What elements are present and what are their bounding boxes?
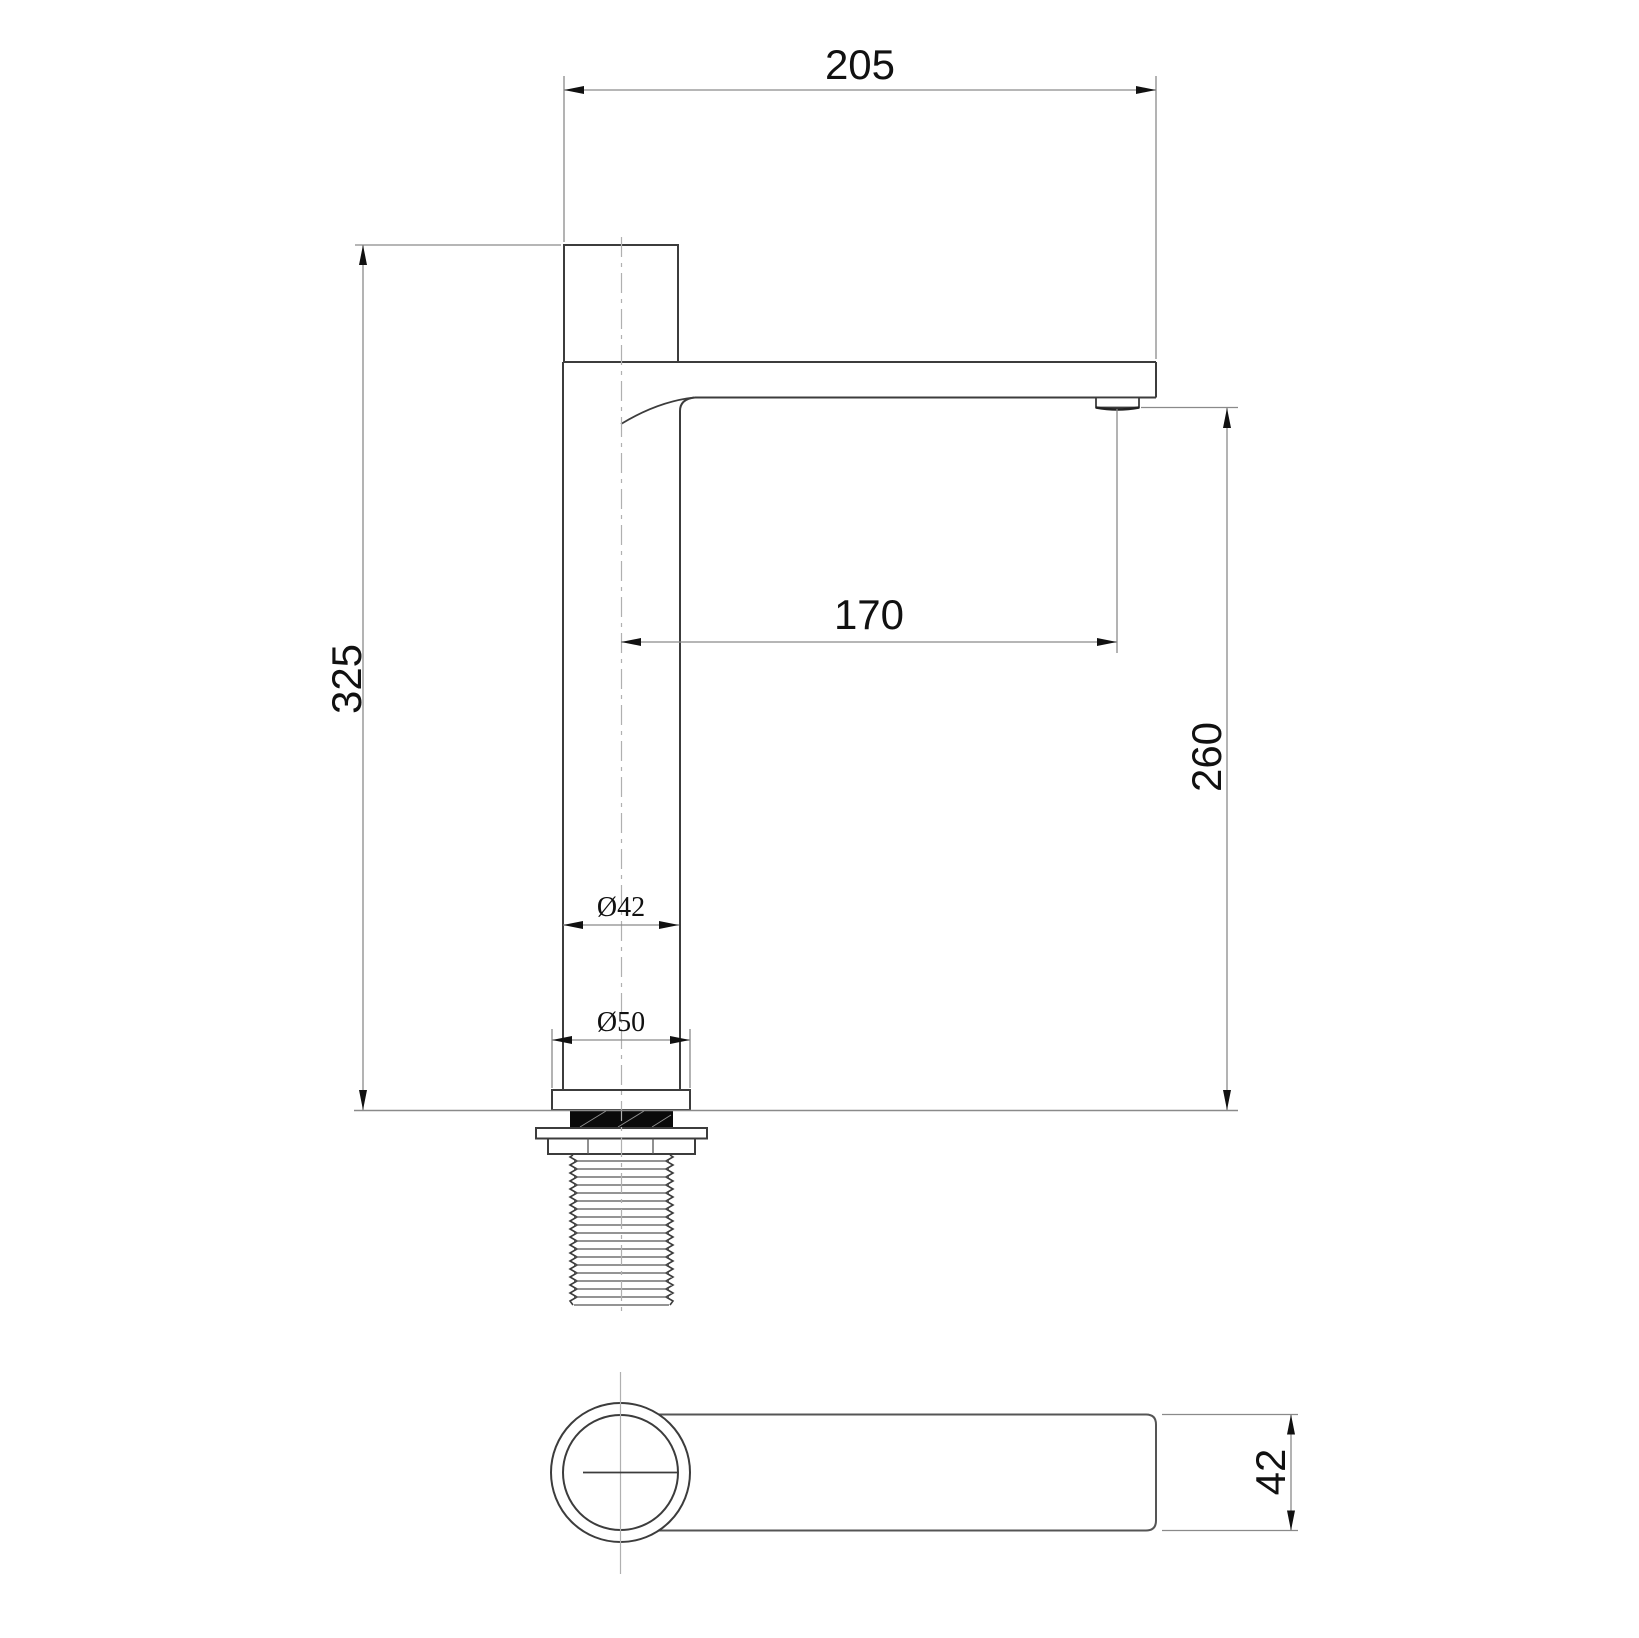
dim-label-d50: Ø50 xyxy=(597,1007,645,1038)
dimension-outlet-offset: 170 xyxy=(621,409,1117,653)
arrowhead-down xyxy=(1287,1511,1295,1531)
dimension-outlet-height: 260 xyxy=(1141,408,1238,1111)
dim-label-170: 170 xyxy=(834,591,904,638)
arrowhead-up xyxy=(359,245,367,265)
arrowhead-up xyxy=(1287,1415,1295,1435)
faucet-body-outline xyxy=(563,245,1156,1090)
dim-label-205: 205 xyxy=(825,41,895,88)
dim-label-325: 325 xyxy=(323,644,370,714)
side-view xyxy=(354,237,1238,1316)
arrowhead-left xyxy=(564,86,584,94)
dimension-total-height: 325 xyxy=(323,245,561,1110)
arrowhead-right xyxy=(1097,638,1117,646)
plan-view xyxy=(551,1372,1156,1574)
dimension-spout-thickness: 42 xyxy=(1162,1415,1298,1531)
faucet-technical-drawing: 205 325 170 260 Ø42 Ø50 xyxy=(0,0,1639,1638)
arrowhead-left xyxy=(621,638,641,646)
dim-label-260: 260 xyxy=(1183,722,1230,792)
column-right-edge xyxy=(680,398,695,1091)
dim-label-42: 42 xyxy=(1247,1449,1294,1496)
arrowhead-up xyxy=(1223,408,1231,428)
arrowhead-left xyxy=(563,921,583,929)
dim-label-d42: Ø42 xyxy=(597,892,645,923)
aerator xyxy=(1096,398,1139,408)
arrowhead-right xyxy=(1136,86,1156,94)
arrowhead-down xyxy=(1223,1090,1231,1110)
handle-knob xyxy=(564,245,678,362)
drawing-page: 205 325 170 260 Ø42 Ø50 xyxy=(0,0,1639,1638)
arrowhead-right xyxy=(659,921,679,929)
arrowhead-down xyxy=(359,1090,367,1110)
spout-arm-plan xyxy=(655,1415,1156,1531)
